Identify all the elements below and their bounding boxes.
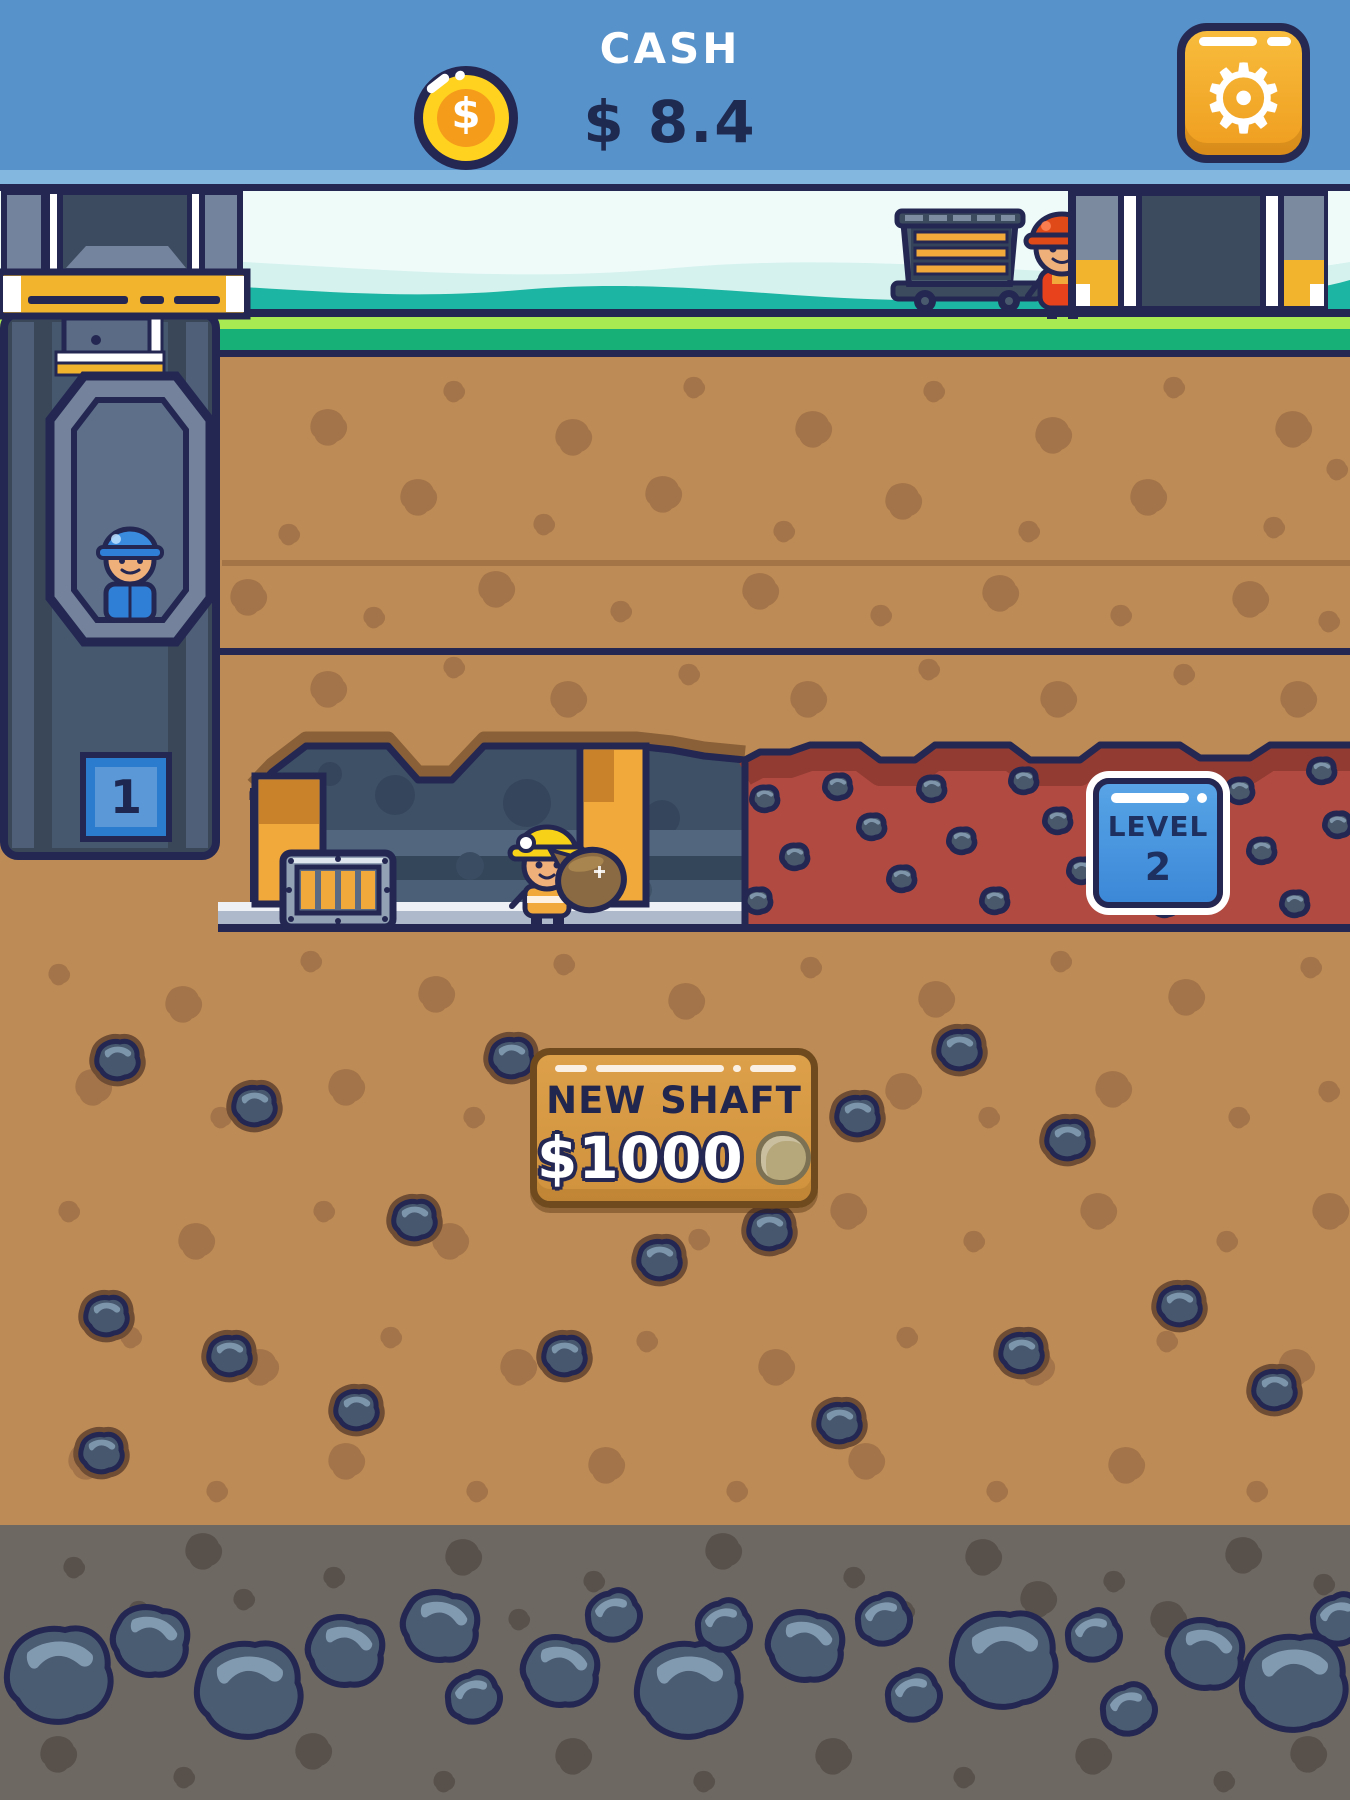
badge-highlight <box>1111 793 1189 803</box>
shaft-level-number: 1 <box>110 770 142 824</box>
ore-nugget-icon <box>756 1131 811 1185</box>
level-label: LEVEL <box>1099 810 1217 843</box>
new-shaft-title: NEW SHAFT <box>537 1079 811 1122</box>
game-screen: CASH $ $ 8.4 ⚙ 1 LEVEL 2 NEW SHAFT $1000 <box>0 0 1350 1800</box>
new-shaft-button[interactable]: NEW SHAFT $1000 <box>530 1048 818 1208</box>
unexcavated-zone <box>745 745 1350 924</box>
badge-highlight <box>1197 793 1207 803</box>
cash-value: $ 8.4 <box>470 88 870 156</box>
headlamp-icon <box>518 835 534 851</box>
button-highlight <box>555 1065 805 1072</box>
elevator-cab <box>50 352 210 642</box>
shaft-level-badge: 1 <box>80 752 172 842</box>
settings-button[interactable]: ⚙ <box>1177 23 1310 163</box>
level-2-badge: LEVEL 2 <box>1093 778 1223 908</box>
coin-shine <box>453 69 466 82</box>
cash-label: CASH <box>470 24 870 73</box>
new-shaft-price: $1000 <box>537 1124 744 1192</box>
surface-building <box>1068 191 1328 311</box>
gear-icon: ⚙ <box>1185 37 1302 161</box>
elevator-headframe <box>0 192 247 316</box>
ore-crate-icon <box>283 853 393 927</box>
level-number: 2 <box>1099 845 1217 889</box>
rock-layer <box>0 1525 1350 1800</box>
